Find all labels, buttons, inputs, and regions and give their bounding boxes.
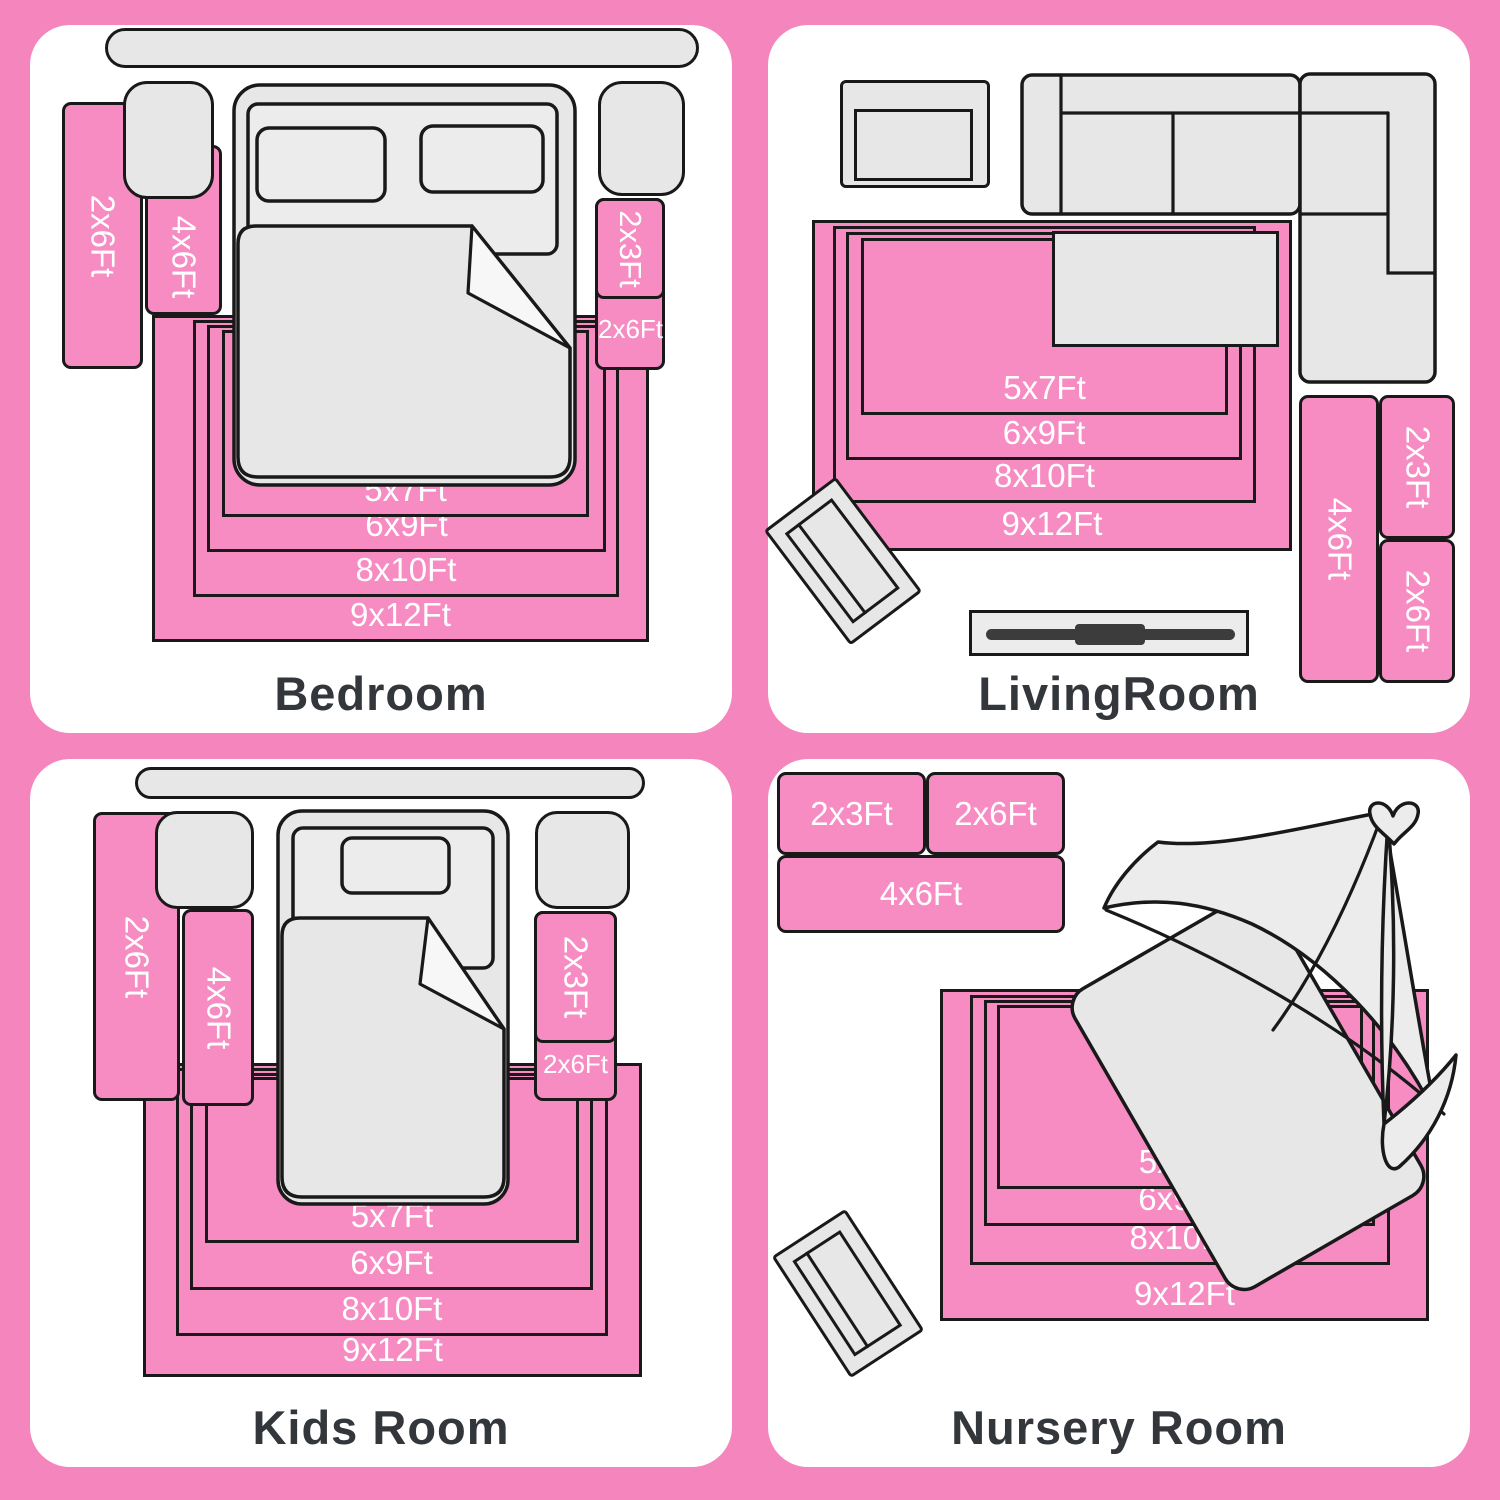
- nursery-rug-4x6: 4x6Ft: [777, 855, 1065, 933]
- rug-size-label: 4x6Ft: [165, 216, 203, 299]
- rug-size-label: 9x12Ft: [815, 506, 1289, 542]
- rug-size-label: 2x3Ft: [780, 775, 923, 852]
- rug-size-label: 2x3Ft: [612, 210, 648, 288]
- rug-size-label: 2x6Ft: [929, 775, 1062, 852]
- rug-size-label-wrap: 2x3Ft: [598, 201, 662, 296]
- rug-size-label-wrap: 2x3Ft: [537, 914, 614, 1040]
- single-bed-icon: [276, 807, 512, 1209]
- rug-size-label: 8x10Ft: [836, 458, 1253, 494]
- rug-size-label: 8x10Ft: [179, 1291, 605, 1327]
- rug-size-label: 4x6Ft: [1320, 498, 1358, 581]
- rug-size-label-wrap: 2x3Ft: [1382, 398, 1452, 536]
- nightstand-right-icon: [598, 81, 685, 196]
- headboard-shelf-icon: [135, 767, 645, 799]
- nursery-rug-2x3: 2x3Ft: [777, 772, 926, 855]
- nightstand-left-icon: [123, 81, 214, 199]
- rug-size-label: 2x6Ft: [84, 194, 122, 277]
- nursery-panel: 9x12Ft 8x10Ft 6x9Ft 5x7Ft 2x3Ft 2x6Ft: [768, 759, 1470, 1467]
- rug-size-guide-infographic: 9x12Ft 8x10Ft 6x9Ft 5x7Ft 2x6Ft 4x6Ft 2x…: [0, 0, 1500, 1500]
- livingroom-rug-2x3: 2x3Ft: [1379, 395, 1455, 539]
- rug-size-label: 4x6Ft: [780, 858, 1062, 930]
- rug-size-label: 2x3Ft: [557, 936, 595, 1019]
- sectional-sofa-icon: [1018, 65, 1438, 385]
- nursery-rug-2x6: 2x6Ft: [926, 772, 1065, 855]
- rug-size-label: 2x6Ft: [118, 915, 156, 998]
- rug-size-label: 6x9Ft: [193, 1245, 590, 1281]
- loveseat-seat: [854, 109, 973, 181]
- kidsroom-panel: 9x12Ft 8x10Ft 6x9Ft 5x7Ft 2x6Ft 4x6Ft 2x…: [30, 759, 732, 1467]
- bed-pillow: [342, 838, 449, 893]
- rug-size-label: 9x12Ft: [155, 597, 646, 633]
- panel-title: Kids Room: [30, 1400, 732, 1455]
- rug-size-label: 6x9Ft: [849, 415, 1239, 451]
- sofa-horizontal-part: [1022, 75, 1300, 214]
- loveseat-icon: [840, 80, 990, 188]
- rug-size-label-wrap: 2x6Ft: [1382, 542, 1452, 680]
- kidsroom-rug-2x3-right: 2x3Ft: [534, 911, 617, 1043]
- rug-size-label: 2x6Ft: [598, 314, 662, 345]
- livingroom-rug-2x6: 2x6Ft: [1379, 539, 1455, 683]
- headboard-shelf-icon: [105, 28, 699, 68]
- tv-stand-box: [1075, 624, 1145, 645]
- rug-size-label-wrap: 4x6Ft: [185, 912, 251, 1103]
- rug-size-label: 4x6Ft: [199, 966, 237, 1049]
- sofa-vertical-part: [1300, 74, 1435, 382]
- changing-mat-inner: [792, 1230, 902, 1357]
- crib-canopy-illustration: [1098, 774, 1470, 1339]
- panel-title: Bedroom: [30, 666, 732, 721]
- panel-title: LivingRoom: [768, 666, 1470, 721]
- kidsroom-rug-4x6-left: 4x6Ft: [182, 909, 254, 1106]
- bed-pillow-left: [257, 128, 385, 201]
- rug-size-label: 9x12Ft: [146, 1332, 639, 1368]
- livingroom-rug-4x6: 4x6Ft: [1299, 395, 1379, 683]
- rug-size-label: 2x6Ft: [537, 1049, 614, 1080]
- rug-size-label: 8x10Ft: [196, 552, 616, 588]
- bed-pillow-right: [421, 126, 543, 192]
- livingroom-panel: 9x12Ft 8x10Ft 6x9Ft 5x7Ft: [768, 25, 1470, 733]
- canopy-drape: [1382, 822, 1456, 1169]
- bedroom-panel: 9x12Ft 8x10Ft 6x9Ft 5x7Ft 2x6Ft 4x6Ft 2x…: [30, 25, 732, 733]
- nightstand-left-icon: [155, 811, 254, 909]
- rug-size-label: 2x3Ft: [1398, 426, 1436, 509]
- rug-size-label: 2x6Ft: [1398, 570, 1436, 653]
- panel-title: Nursery Room: [768, 1400, 1470, 1455]
- bedroom-rug-2x3-right: 2x3Ft: [595, 198, 665, 299]
- nightstand-right-icon: [535, 811, 630, 909]
- tv-console-icon: [969, 610, 1249, 656]
- rug-size-label-wrap: 4x6Ft: [1302, 398, 1376, 680]
- changing-mat-icon: [772, 1209, 925, 1379]
- double-bed-icon: [232, 80, 578, 492]
